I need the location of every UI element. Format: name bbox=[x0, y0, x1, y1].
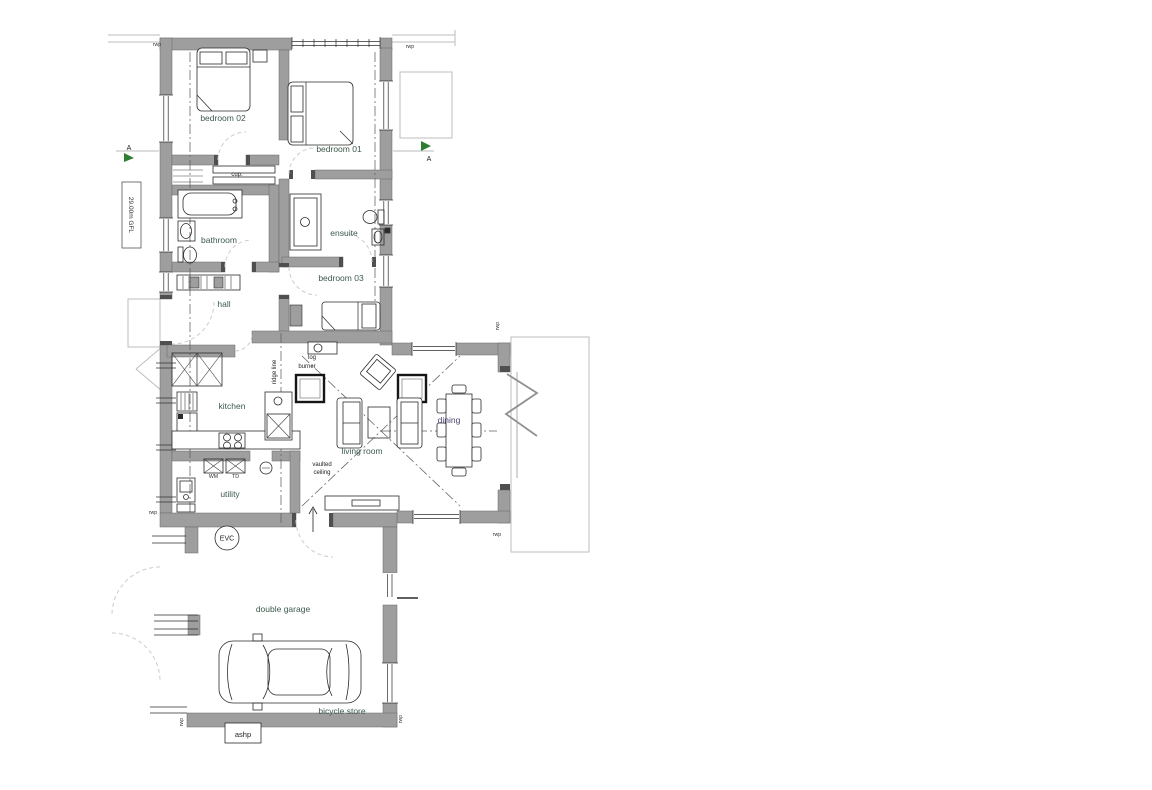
ridge-line-label: ridge line bbox=[272, 359, 278, 384]
td-label: TD bbox=[232, 474, 239, 480]
floor-plan-drawing: A A 29.00m GFL bbox=[0, 0, 1152, 790]
room-label-living-room: living room bbox=[341, 446, 382, 456]
room-label-dining: dining bbox=[438, 415, 461, 425]
vaulted-label: vaulted bbox=[312, 462, 331, 468]
room-label-bicycle-store: bicycle store bbox=[318, 706, 366, 716]
bathtub-icon bbox=[178, 190, 242, 218]
room-label-bedroom03: bedroom 03 bbox=[318, 273, 364, 283]
room-label-kitchen: kitchen bbox=[219, 401, 246, 411]
window-hall bbox=[159, 272, 173, 292]
room-label-double-garage: double garage bbox=[256, 604, 311, 614]
double-bed-icon bbox=[288, 82, 353, 145]
entrance-porch bbox=[128, 299, 162, 391]
room-label-hall: hall bbox=[217, 299, 230, 309]
coffee-table-icon bbox=[368, 407, 390, 438]
patio-outline bbox=[400, 72, 452, 138]
room-label-utility: utility bbox=[220, 489, 240, 499]
rwp-label: rwp bbox=[406, 44, 414, 50]
rwp-label: rwp bbox=[153, 42, 161, 48]
window-bedroom02 bbox=[159, 95, 173, 142]
rwp-label: rwp bbox=[149, 510, 157, 516]
ceiling-label: ceiling bbox=[313, 470, 330, 476]
toilet-icon bbox=[178, 247, 197, 263]
sofa-icon bbox=[337, 398, 362, 448]
log-burner-icon bbox=[308, 342, 337, 354]
armchair-icon bbox=[360, 354, 397, 391]
gfl-label: 29.00m GFL bbox=[127, 197, 134, 234]
room-label-ensuite: ensuite bbox=[330, 228, 358, 238]
dining-table-icon bbox=[437, 385, 481, 476]
ev-charger-icon: EVC bbox=[215, 526, 239, 550]
hall-console-icon bbox=[177, 275, 240, 290]
shower-icon bbox=[290, 194, 321, 250]
floor-plan-canvas: A A 29.00m GFL bbox=[0, 0, 1152, 790]
section-marker-left: A bbox=[127, 145, 132, 152]
kitchen-island-icon bbox=[265, 392, 292, 440]
evc-label: EVC bbox=[220, 536, 234, 543]
room-label-bathroom: bathroom bbox=[201, 235, 237, 245]
room-label-bedroom01: bedroom 01 bbox=[316, 144, 362, 154]
window-living-north bbox=[412, 342, 456, 356]
svp-marker bbox=[385, 228, 390, 233]
basin-icon bbox=[178, 221, 195, 241]
sofa-icon bbox=[397, 398, 422, 448]
rwp-label: rwp bbox=[495, 322, 501, 330]
section-arrow-right-icon bbox=[421, 141, 431, 151]
bedside-chest-icon bbox=[290, 305, 302, 326]
step-arrow-icon bbox=[309, 507, 317, 532]
window-bathroom bbox=[159, 218, 173, 252]
section-arrow-left-icon bbox=[124, 153, 134, 162]
extract-fan-icon bbox=[260, 462, 272, 474]
closet-shelves-icon bbox=[173, 170, 203, 182]
room-label-bedroom02: bedroom 02 bbox=[200, 113, 246, 123]
window-ensuite bbox=[379, 200, 393, 225]
log-label: log bbox=[308, 355, 316, 361]
tv-unit-icon bbox=[325, 496, 399, 510]
utility-sink-icon bbox=[177, 478, 195, 512]
garage-side-window bbox=[383, 573, 397, 599]
window-bedroom03 bbox=[379, 255, 393, 287]
window-living-south bbox=[413, 510, 460, 524]
burner-label: burner bbox=[298, 364, 315, 370]
ashp-label: ashp bbox=[235, 730, 251, 739]
cupboard-icon bbox=[213, 166, 275, 184]
single-bed-icon bbox=[290, 302, 380, 330]
gfl-label-box: 29.00m GFL bbox=[122, 182, 141, 248]
terrace-outline bbox=[511, 337, 589, 552]
window-top-band bbox=[292, 37, 380, 50]
kitchen-pantry-icon bbox=[172, 353, 222, 386]
rwp-label: rwp bbox=[493, 532, 501, 538]
window-bedroom01 bbox=[379, 81, 393, 130]
bicycle-store-door bbox=[382, 663, 398, 703]
rwp-label: rwp bbox=[398, 715, 404, 723]
car-top-view-icon bbox=[219, 634, 361, 710]
rwp-label: rwp bbox=[179, 718, 185, 726]
column-icon bbox=[296, 375, 324, 402]
fridge-freezer-icon bbox=[177, 392, 197, 433]
section-marker-right: A bbox=[427, 156, 432, 163]
wm-label: WM bbox=[209, 474, 218, 480]
cupboard-label: cup. bbox=[231, 172, 243, 178]
ashp-unit: ashp bbox=[225, 723, 261, 743]
double-bed-icon bbox=[197, 48, 267, 111]
